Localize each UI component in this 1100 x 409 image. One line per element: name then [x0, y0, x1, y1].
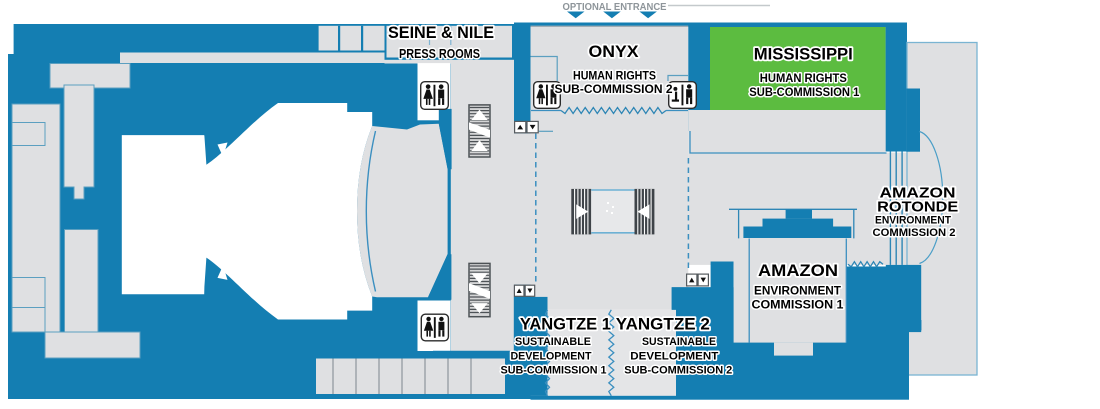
svg-text:ENVIRONMENT: ENVIRONMENT	[754, 285, 841, 298]
svg-text:HUMAN RIGHTS: HUMAN RIGHTS	[573, 70, 656, 83]
svg-text:YANGTZE 1: YANGTZE 1	[520, 316, 611, 334]
svg-text:YANGTZE 2: YANGTZE 2	[616, 316, 710, 334]
svg-text:SUB-COMMISSION 1: SUB-COMMISSION 1	[501, 365, 607, 377]
svg-text:ROTONDE: ROTONDE	[877, 199, 958, 215]
svg-text:OPTIONAL ENTRANCE: OPTIONAL ENTRANCE	[563, 2, 667, 13]
svg-text:SUSTAINABLE: SUSTAINABLE	[642, 336, 716, 348]
svg-text:HUMAN RIGHTS: HUMAN RIGHTS	[760, 72, 847, 85]
svg-text:MISSISSIPPI: MISSISSIPPI	[754, 45, 853, 64]
svg-text:ONYX: ONYX	[589, 42, 640, 61]
svg-text:COMMISSION 1: COMMISSION 1	[752, 299, 845, 312]
svg-text:SUB-COMMISSION 2: SUB-COMMISSION 2	[555, 83, 673, 96]
svg-text:SUB-COMMISSION 2: SUB-COMMISSION 2	[624, 365, 732, 377]
svg-text:COMMISSION 2: COMMISSION 2	[873, 227, 956, 239]
svg-text:SEINE & NILE: SEINE & NILE	[388, 23, 494, 42]
svg-text:DEVELOPMENT: DEVELOPMENT	[630, 351, 718, 363]
svg-text:DEVELOPMENT: DEVELOPMENT	[511, 351, 592, 363]
svg-text:AMAZON: AMAZON	[758, 262, 838, 280]
svg-text:SUB-COMMISSION 1: SUB-COMMISSION 1	[749, 86, 860, 99]
svg-text:SUSTAINABLE: SUSTAINABLE	[515, 336, 591, 348]
svg-text:PRESS ROOMS: PRESS ROOMS	[399, 46, 480, 61]
svg-text:ENVIRONMENT: ENVIRONMENT	[875, 215, 951, 227]
